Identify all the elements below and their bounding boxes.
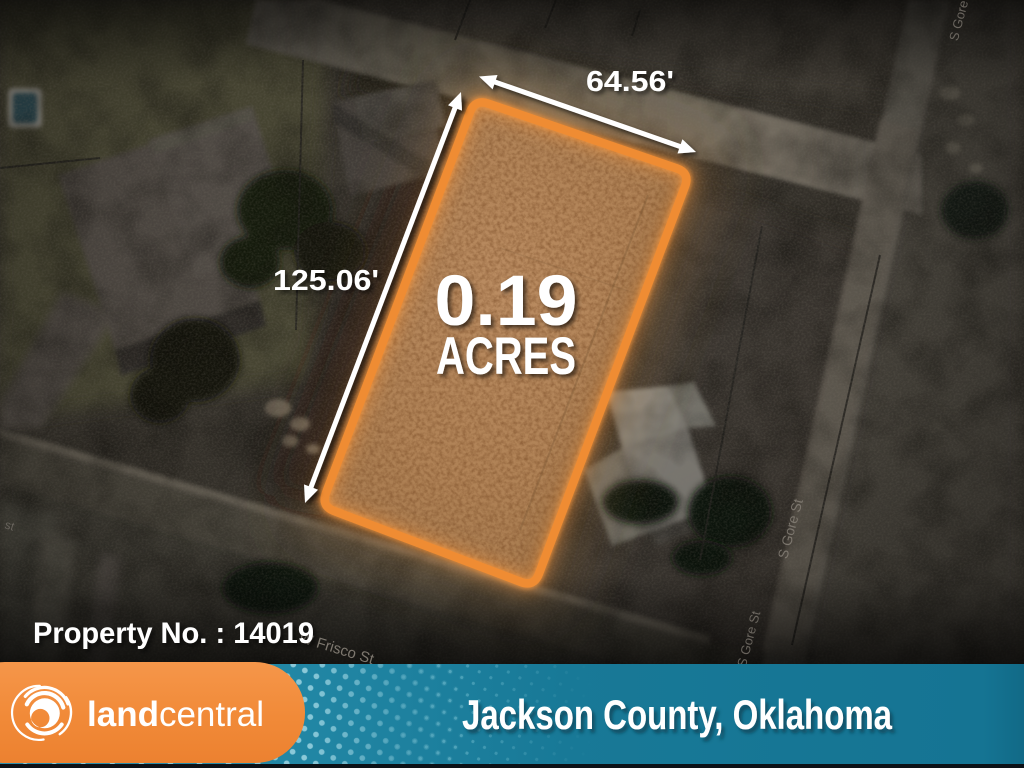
svg-text:Property No. : 14019: Property No. : 14019 — [33, 617, 314, 650]
svg-text:64.56': 64.56' — [586, 66, 674, 98]
svg-text:Jackson County, Oklahoma: Jackson County, Oklahoma — [462, 691, 893, 738]
svg-text:ACRES: ACRES — [436, 327, 576, 386]
svg-text:landcentral: landcentral — [87, 695, 264, 734]
svg-text:125.06': 125.06' — [273, 265, 379, 297]
